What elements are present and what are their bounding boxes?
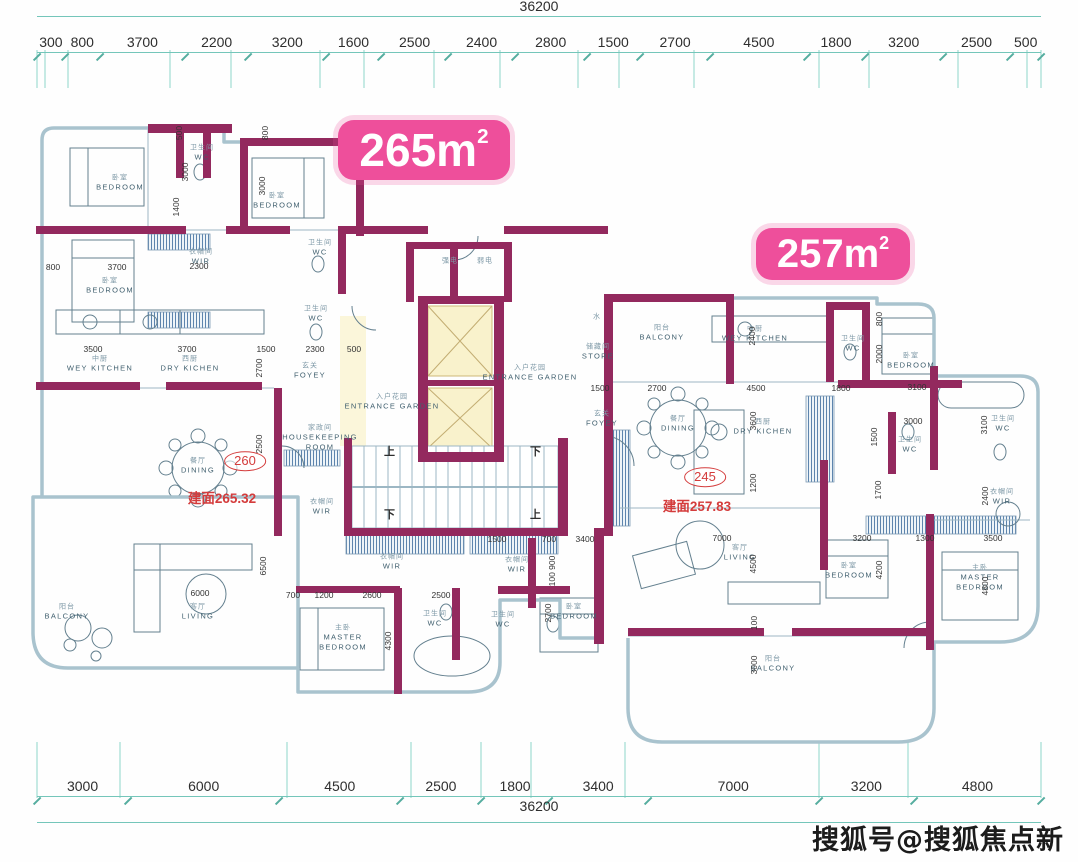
room-label: 家政间HOUSEKEEPING ROOM (282, 424, 358, 453)
room-label: 主卧MASTER BEDROOM (319, 624, 367, 653)
room-label-cn: 上 (384, 445, 396, 459)
room-label-cn: 衣帽间 (310, 498, 334, 507)
room-label: 卧室BEDROOM (825, 562, 873, 581)
room-label-en: WC (841, 344, 865, 354)
dim-segment-label: 1500 (598, 35, 629, 49)
dim-segment: 2400 (448, 35, 514, 52)
room-label-en: DINING (661, 424, 695, 434)
room-label-en: WC (304, 314, 328, 324)
plan-dim-label: 2700 (543, 604, 553, 623)
dim-segment-label: 7000 (718, 779, 749, 793)
room-label-cn: 衣帽间 (990, 488, 1014, 497)
plan-dim-label: 3700 (108, 262, 127, 272)
room-label: 卫生间WC (423, 610, 447, 629)
plan-dim-label: 3000 (904, 416, 923, 426)
outer-walls (33, 128, 1038, 742)
room-label: 玄关FOYEY (586, 410, 618, 429)
dim-segment: 2800 (515, 35, 587, 52)
room-label: 入户花园ENTRANCE GARDEN (345, 393, 440, 412)
room-label-cn: 卧室 (825, 562, 873, 571)
plan-dim-label: 4500 (747, 383, 766, 393)
room-label-en: LIVING (182, 612, 214, 622)
plan-dim-label: 2300 (190, 261, 209, 271)
room-label: 下 (384, 508, 396, 522)
dim-segment-label: 800 (71, 35, 94, 49)
room-label: 入户花园ENTRANCE GARDEN (483, 364, 578, 383)
room-label-cn: 卫生间 (841, 335, 865, 344)
floor-tints (340, 306, 492, 448)
plan-dim-label: 4800 (980, 577, 990, 596)
room-label: 餐厅DINING (181, 457, 215, 476)
dim-segment-label: 1800 (499, 779, 530, 793)
room-label-en: STORE (582, 352, 614, 362)
dim-segment: 2700 (640, 35, 711, 52)
sofa-icon (134, 544, 160, 632)
room-label-en: ENTRANCE GARDEN (345, 402, 440, 412)
dim-top-total: 36200 (37, 0, 1041, 17)
dim-segment: 1800 (481, 779, 548, 796)
room-label-cn: 卫生间 (491, 611, 515, 620)
toilet-icon (994, 444, 1006, 460)
plan-dim-label: 1300 (916, 533, 935, 543)
plan-dim-label: 1700 (873, 481, 883, 500)
plan-dim-label: 500 (347, 344, 361, 354)
plan-dim-label: 3000 (257, 177, 267, 196)
plan-dim-label: 1500 (869, 428, 879, 447)
area-text-257: 建面257.83 (663, 495, 731, 515)
dim-segment: 3000 (37, 779, 128, 796)
area-badge-265-text: 265m (359, 123, 477, 177)
dim-segment: 300 (37, 35, 65, 52)
room-label-cn: 主卧 (956, 564, 1004, 573)
room-label-en: BEDROOM (86, 286, 134, 296)
room-label-cn: 下 (530, 445, 542, 459)
dim-segment-label: 2800 (535, 35, 566, 49)
dim-segment: 3700 (100, 35, 185, 52)
plan-dim-label: 3200 (853, 533, 872, 543)
room-label-en: WC (491, 620, 515, 630)
dim-segment: 800 (65, 35, 100, 52)
dim-segment: 4500 (279, 779, 400, 796)
room-label-en: BALCONY (45, 612, 90, 622)
plan-dim-label: 3500 (84, 344, 103, 354)
room-label-cn: 卫生间 (308, 239, 332, 248)
room-label-en: BEDROOM (825, 571, 873, 581)
toilet-icon (312, 256, 324, 272)
plan-dim-label: 1500 (488, 534, 507, 544)
room-label: 卧室BEDROOM (550, 603, 598, 622)
room-label-en: BEDROOM (550, 612, 598, 622)
plan-dim-label: 100 (749, 616, 759, 630)
dim-segment: 2500 (943, 35, 1011, 52)
room-label-cn: 衣帽间 (189, 248, 213, 257)
plan-dim-label: 3600 (748, 412, 758, 431)
room-label-cn: 卧室 (96, 174, 144, 183)
area-badge-257-sup: 2 (879, 233, 889, 254)
room-label-cn: 家政间 (282, 424, 358, 433)
room-label: 衣帽间WIR (380, 553, 404, 572)
area-badge-257: 257m2 (756, 228, 910, 280)
plan-dim-label: 2500 (432, 590, 451, 600)
room-label: 客厅LIVING (182, 603, 214, 622)
plan-dim-label: 1400 (171, 198, 181, 217)
dim-segment-label: 6000 (188, 779, 219, 793)
plan-dim-label: 2700 (254, 359, 264, 378)
plan-dim-label: 3700 (178, 344, 197, 354)
plan-dim-label: 3000 (749, 656, 759, 675)
dim-segment: 2500 (400, 779, 481, 796)
room-label-cn: 客厅 (182, 603, 214, 612)
room-label-cn: 卧室 (550, 603, 598, 612)
plan-dim-label: 1200 (748, 474, 758, 493)
room-label: 卫生间WC (304, 305, 328, 324)
room-label-en: DINING (181, 466, 215, 476)
plan-dim-label: 2000 (874, 345, 884, 364)
room-label-cn: 西厨 (734, 418, 793, 427)
room-label-cn: 卫生间 (423, 610, 447, 619)
dim-segment-label: 2500 (961, 35, 992, 49)
room-label: 卫生间WC (491, 611, 515, 630)
room-label-cn: 衣帽间 (380, 553, 404, 562)
plant-icon (91, 651, 101, 661)
room-label-cn: 阳台 (45, 603, 90, 612)
dim-segment-label: 500 (1014, 35, 1037, 49)
dim-segment-label: 2500 (399, 35, 430, 49)
room-label-en: WIR (990, 497, 1014, 507)
room-label: 阳台BALCONY (640, 324, 685, 343)
dim-top-segments: 3008003700220032001600250024002800150027… (37, 24, 1041, 53)
room-label-en: BALCONY (640, 333, 685, 343)
plan-dim-label: 1500 (257, 344, 276, 354)
plan-dim-label: 6500 (258, 557, 268, 576)
room-label-cn: 主卧 (319, 624, 367, 633)
area-badge-265: 265m2 (338, 120, 510, 180)
dim-segment-label: 2400 (466, 35, 497, 49)
plan-dim-label: 500 (174, 126, 184, 140)
room-label: 卫生间WC (190, 144, 214, 163)
dim-segment-label: 1600 (338, 35, 369, 49)
room-label: 衣帽间WIR (505, 556, 529, 575)
room-label-cn: 弱电 (477, 256, 493, 265)
room-label: 卧室BEDROOM (887, 352, 935, 371)
dim-segment-label: 300 (39, 35, 62, 49)
dim-segment: 3200 (819, 779, 914, 796)
dim-segment-label: 4500 (324, 779, 355, 793)
area-badge-257-text: 257m (777, 232, 879, 277)
plan-dim-label: 2600 (363, 590, 382, 600)
room-label: 卫生间WC (841, 335, 865, 354)
room-label-cn: 卧室 (86, 277, 134, 286)
dim-segment-label: 2700 (660, 35, 691, 49)
plan-dim-label: 700 (542, 534, 556, 544)
dim-segment-label: 3200 (851, 779, 882, 793)
room-label: 西厨DRY KICHEN (734, 418, 793, 437)
room-label-en: HOUSEKEEPING ROOM (282, 433, 358, 453)
dim-segment-label: 4800 (962, 779, 993, 793)
dim-segment: 4800 (914, 779, 1041, 796)
plan-dim-label: 800 (260, 126, 270, 140)
plan-dim-label: 1800 (832, 383, 851, 393)
plant-icon (92, 628, 112, 648)
room-label: 卫生间WC (898, 436, 922, 455)
dim-segment-label: 2500 (425, 779, 456, 793)
room-label-cn: 卧室 (887, 352, 935, 361)
room-label: 餐厅DINING (661, 415, 695, 434)
dim-segment-label: 3700 (127, 35, 158, 49)
room-label-cn: 卫生间 (304, 305, 328, 314)
dim-segment-label: 4500 (743, 35, 774, 49)
dim-segment: 4500 (710, 35, 807, 52)
dim-bottom-total-label: 36200 (520, 798, 559, 814)
dim-segment: 3400 (549, 779, 648, 796)
toilet-icon (310, 324, 322, 340)
room-label-cn: 玄关 (294, 362, 326, 371)
area-badge-265-sup: 2 (477, 125, 489, 149)
room-label: 中厨WEY KITCHEN (67, 355, 133, 374)
plan-dim-label: 3000 (180, 163, 190, 182)
room-label-cn: 餐厅 (661, 415, 695, 424)
room-label: 上 (384, 445, 396, 459)
room-label-cn: 水 (593, 312, 601, 321)
dim-segment-label: 3200 (888, 35, 919, 49)
plan-dim-label: 800 (46, 262, 60, 272)
room-label-en: DRY KICHEN (734, 427, 793, 437)
plan-dim-label: 3100 (908, 382, 927, 392)
room-label-cn: 入户花园 (345, 393, 440, 402)
room-label-cn: 下 (384, 508, 396, 522)
dim-segment: 6000 (128, 779, 279, 796)
room-label-en: WC (898, 445, 922, 455)
area-text-265: 建面265.32 (188, 487, 256, 507)
plan-dim-label: 3400 (576, 534, 595, 544)
room-label-cn: 卫生间 (898, 436, 922, 445)
dim-segment: 1500 (587, 35, 640, 52)
room-label: 西厨DRY KICHEN (161, 355, 220, 374)
room-label: 卧室BEDROOM (96, 174, 144, 193)
room-label: 弱电 (477, 256, 493, 265)
room-label-cn: 卫生间 (190, 144, 214, 153)
room-label: 水 (593, 312, 601, 321)
room-label-cn: 客厅 (724, 544, 756, 553)
room-label-cn: 卫生间 (991, 415, 1015, 424)
dim-segment-label: 1800 (820, 35, 851, 49)
plan-dim-label: 4200 (874, 561, 884, 580)
room-label-cn: 强电 (442, 256, 458, 265)
plan-dim-label: 100 900 (547, 556, 557, 587)
room-label-en: ENTRANCE GARDEN (483, 373, 578, 383)
room-label: 强电 (442, 256, 458, 265)
plan-dim-label: 700 (286, 590, 300, 600)
dim-segment: 3200 (248, 35, 326, 52)
dim-segment: 1800 (807, 35, 864, 52)
room-label-cn: 餐厅 (181, 457, 215, 466)
plan-dim-label: 1200 (315, 590, 334, 600)
dim-segment: 7000 (648, 779, 819, 796)
plan-dim-label: 3500 (984, 533, 1003, 543)
dim-segment-label: 3000 (67, 779, 98, 793)
sofa-icon (134, 544, 252, 570)
room-label-en: FOYEY (294, 371, 326, 381)
plan-dim-label: 800 (874, 312, 884, 326)
dim-segment-label: 3200 (272, 35, 303, 49)
plan-dim-label: 2500 (254, 435, 264, 454)
watermark: 搜狐号@搜狐焦点新余站 (812, 818, 1078, 862)
room-label-cn: 储藏间 (582, 343, 614, 352)
plan-dim-label: 2400 (980, 487, 990, 506)
room-label-cn: 上 (530, 508, 542, 522)
room-label: 储藏间STORE (582, 343, 614, 362)
room-label-en: BEDROOM (96, 183, 144, 193)
room-label-en: WEY KITCHEN (67, 364, 133, 374)
floor-plan-page: 36200 3008003700220032001600250024002800… (0, 0, 1078, 862)
plan-dim-label: 4500 (748, 555, 758, 574)
room-label-en: WIR (380, 562, 404, 572)
dim-segment: 2500 (381, 35, 449, 52)
dim-top-total-label: 36200 (520, 0, 559, 14)
dim-segment: 500 (1010, 35, 1041, 52)
dim-bottom-segments: 300060004500250018003400700032004800 (37, 768, 1041, 797)
room-label: 上 (530, 508, 542, 522)
room-label-cn: 入户花园 (483, 364, 578, 373)
plan-dim-label: 2300 (306, 344, 325, 354)
room-label-en: FOYEY (586, 419, 618, 429)
room-label: 衣帽间WIR (990, 488, 1014, 507)
room-label-en: WIR (310, 507, 334, 517)
room-label-en: WC (308, 248, 332, 258)
room-label: 卧室BEDROOM (86, 277, 134, 296)
room-label-en: BEDROOM (253, 201, 301, 211)
room-label-cn: 玄关 (586, 410, 618, 419)
plan-dim-label: 2700 (648, 383, 667, 393)
plan-dim-label: 1500 (591, 383, 610, 393)
room-label-cn: 西厨 (161, 355, 220, 364)
floor-plan-drawing (0, 0, 1078, 862)
room-label-en: DRY KICHEN (161, 364, 220, 374)
room-label-en: WC (190, 153, 214, 163)
plan-dim-label: 2400 (747, 327, 757, 346)
room-label-cn: 中厨 (67, 355, 133, 364)
plan-dim-label: 4300 (383, 632, 393, 651)
dim-segment: 2200 (185, 35, 248, 52)
room-label-en: WC (423, 619, 447, 629)
plant-icon (64, 639, 76, 651)
room-label: 阳台BALCONY (45, 603, 90, 622)
room-label-cn: 阳台 (640, 324, 685, 333)
plan-dim-label: 3100 (979, 416, 989, 435)
unit-number-245: 245 (684, 467, 726, 487)
room-label-en: WIR (505, 565, 529, 575)
dim-segment: 3200 (865, 35, 943, 52)
room-label: 衣帽间WIR (310, 498, 334, 517)
room-label-en: WC (991, 424, 1015, 434)
room-label: 卫生间WC (308, 239, 332, 258)
dim-segment: 1600 (326, 35, 381, 52)
plan-dim-label: 6000 (191, 588, 210, 598)
dim-segment-label: 3400 (583, 779, 614, 793)
room-label: 卫生间WC (991, 415, 1015, 434)
room-label: 玄关FOYEY (294, 362, 326, 381)
room-label-cn: 衣帽间 (505, 556, 529, 565)
plan-dim-label: 7000 (713, 533, 732, 543)
dim-segment-label: 2200 (201, 35, 232, 49)
unit-number-260: 260 (224, 451, 266, 471)
room-label-en: BEDROOM (887, 361, 935, 371)
room-label: 下 (530, 445, 542, 459)
room-label-en: MASTER BEDROOM (319, 633, 367, 653)
